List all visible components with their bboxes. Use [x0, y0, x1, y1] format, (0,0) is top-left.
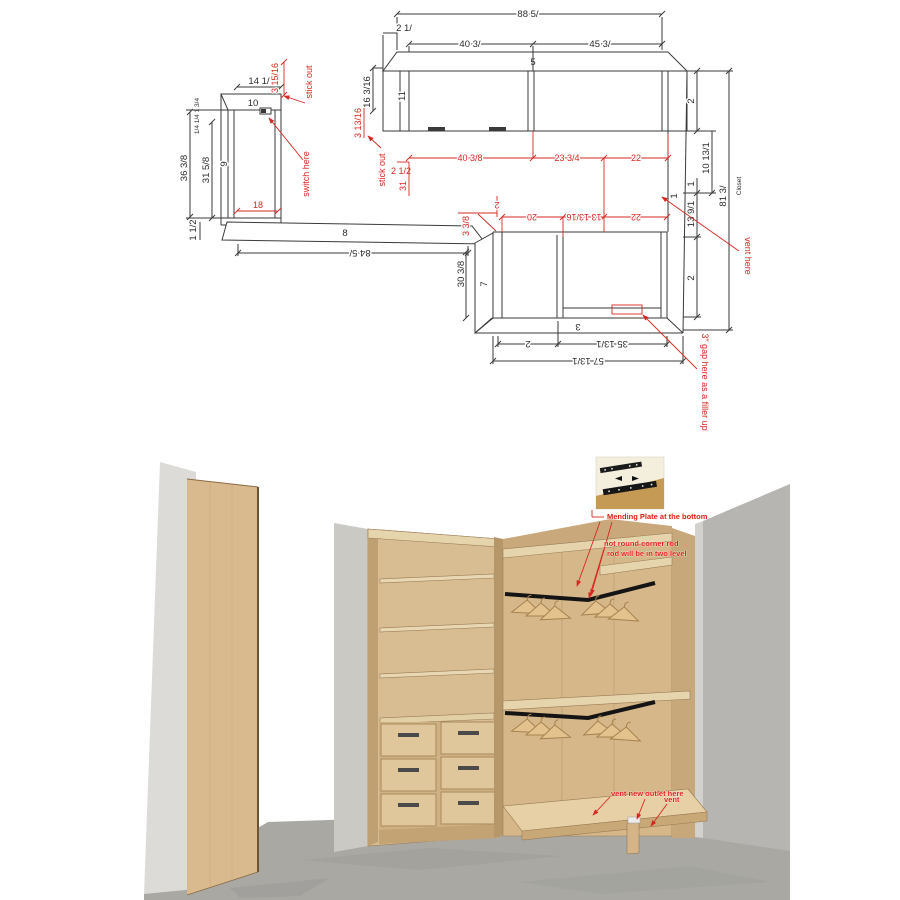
red-dim-upper-return: 31 — [398, 181, 408, 191]
vent-outlet — [628, 817, 640, 823]
red-dim-lower-seg1: 20 — [527, 212, 537, 222]
drawer-handle — [398, 733, 419, 737]
dim-right-total: 81 3/ — [718, 185, 729, 206]
dim-right-mid: 13 9/1 — [686, 201, 697, 227]
unit-left-gable — [334, 523, 368, 852]
drawer — [441, 792, 496, 824]
dim-bottom-seg-small: 2 — [525, 338, 530, 349]
drawer — [441, 722, 496, 754]
red-note-vent-here: vent here — [743, 237, 753, 275]
dim-end-panel: 11 — [397, 91, 408, 101]
dim-right-upper: 10 13/1 — [701, 142, 712, 174]
drawer-stack — [379, 722, 499, 830]
red-note-stickout-mid: stick out — [377, 153, 387, 187]
dim-right-seg-top: 2 — [686, 98, 697, 103]
door-handle — [489, 127, 506, 131]
red-dim-upper-seg2: 23 3/4 — [554, 153, 579, 163]
dim-overall-width: 88 5/ — [517, 9, 538, 20]
closet-design-canvas: 5 11 88 5/ 2 1/ 40 3/ 45 3/ 16 3/16 — [0, 0, 900, 900]
red-dim-upper-offset: 2 1/2 — [391, 166, 411, 176]
drawer — [441, 757, 496, 789]
closet-design-sheet: 5 11 88 5/ 2 1/ 40 3/ 45 3/ 16 3/16 — [0, 0, 900, 900]
red-dim-lower-offset: 2 — [494, 200, 499, 210]
drawer-handle — [458, 801, 479, 805]
dim-leftcab-top: 10 — [248, 98, 259, 109]
door-handle — [428, 127, 445, 131]
dim-right-wall: 1 — [669, 193, 680, 198]
mending-plate-photo — [596, 457, 664, 509]
dim-bottom-wall: 8 — [342, 228, 347, 239]
closet-label: Closet — [736, 177, 743, 196]
plan-upper-cabinet: 5 11 — [383, 52, 687, 131]
red-dim-step-height: 3 3/8 — [461, 216, 471, 236]
plan-lower-cabinet: 7 3 30 3/8 2 35 13/1 57 13/1 — [456, 232, 686, 366]
right-wall-edge — [695, 521, 703, 838]
dim-lower-bottom: 3 — [575, 321, 580, 332]
dim-left-base: 1 1/2 — [188, 219, 199, 240]
dim-bottom-wall-length: 84 5/ — [349, 247, 370, 258]
dim-bottom-total: 57 13/1 — [572, 355, 604, 366]
closet-unit — [334, 519, 707, 854]
elevation-render: Mending Plate at the bottom not round co… — [144, 457, 790, 900]
plan-left-cabinet: 10 9 14 1/ 36 3/8 31 5/8 1/4 1/4 1 3/4 1… — [179, 76, 284, 241]
red-dim-lower-seg3: 22 — [631, 212, 641, 222]
note-mending-plate: Mending Plate at the bottom — [607, 512, 708, 521]
plan-bottom-wall: 8 84 5/ — [222, 222, 486, 258]
bay-divider — [494, 537, 503, 838]
right-wall — [703, 484, 790, 851]
bench-leg — [627, 822, 639, 854]
red-note-switch-here: switch here — [301, 151, 311, 197]
red-dim-upper-gap: 3 13/16 — [353, 108, 363, 138]
drawer — [381, 794, 436, 826]
note-vent: vent — [664, 795, 680, 804]
red-dim-leftcab-gap: 3 15/16 — [270, 63, 280, 93]
left-tall-panel — [187, 479, 258, 895]
dim-left-offset: 2 1/ — [396, 23, 412, 34]
floor-plan: 5 11 88 5/ 2 1/ 40 3/ 45 3/ 16 3/16 — [179, 9, 753, 431]
dim-bottom-seg-right: 35 13/1 — [596, 338, 628, 349]
red-dim-upper-seg1: 40 3/8 — [457, 153, 482, 163]
dim-bay-right: 45 3/ — [589, 39, 610, 50]
dim-right-seg-bottom: 2 — [686, 275, 697, 280]
drawer — [381, 759, 436, 791]
dim-left-height-outer: 36 3/8 — [179, 155, 190, 181]
dim-leftcab-side: 9 — [219, 161, 230, 166]
dim-bay-left: 40 3/ — [459, 39, 480, 50]
dim-left-height-inner: 31 5/8 — [201, 157, 212, 183]
dim-right-one: 1 — [686, 181, 697, 186]
dim-leftcab-width: 14 1/ — [248, 76, 269, 87]
red-dim-leftcab-inner: 18 — [253, 200, 263, 210]
note-rod-1: not round corner rod — [604, 539, 679, 548]
dim-lower-depth: 30 3/8 — [456, 261, 467, 287]
red-note-stickout-left: stick out — [304, 65, 314, 99]
dim-lower-side: 7 — [479, 281, 490, 286]
red-note-gap: 3" gap here as a filler up — [700, 333, 710, 430]
dim-left-stack: 1/4 1/4 1 3/4 — [194, 98, 201, 135]
dim-left-return: 16 3/16 — [362, 76, 373, 108]
drawer — [381, 724, 436, 756]
red-dim-upper-seg3: 22 — [631, 153, 641, 163]
drawer-handle — [458, 766, 479, 770]
drawer-handle — [398, 803, 419, 807]
red-dim-lower-seg2: 13 13/16 — [566, 212, 601, 222]
filler-gap-highlight — [612, 305, 642, 314]
note-rod-2: rod will be in two level — [607, 549, 687, 558]
drawer-handle — [458, 731, 479, 735]
drawer-handle — [398, 768, 419, 772]
